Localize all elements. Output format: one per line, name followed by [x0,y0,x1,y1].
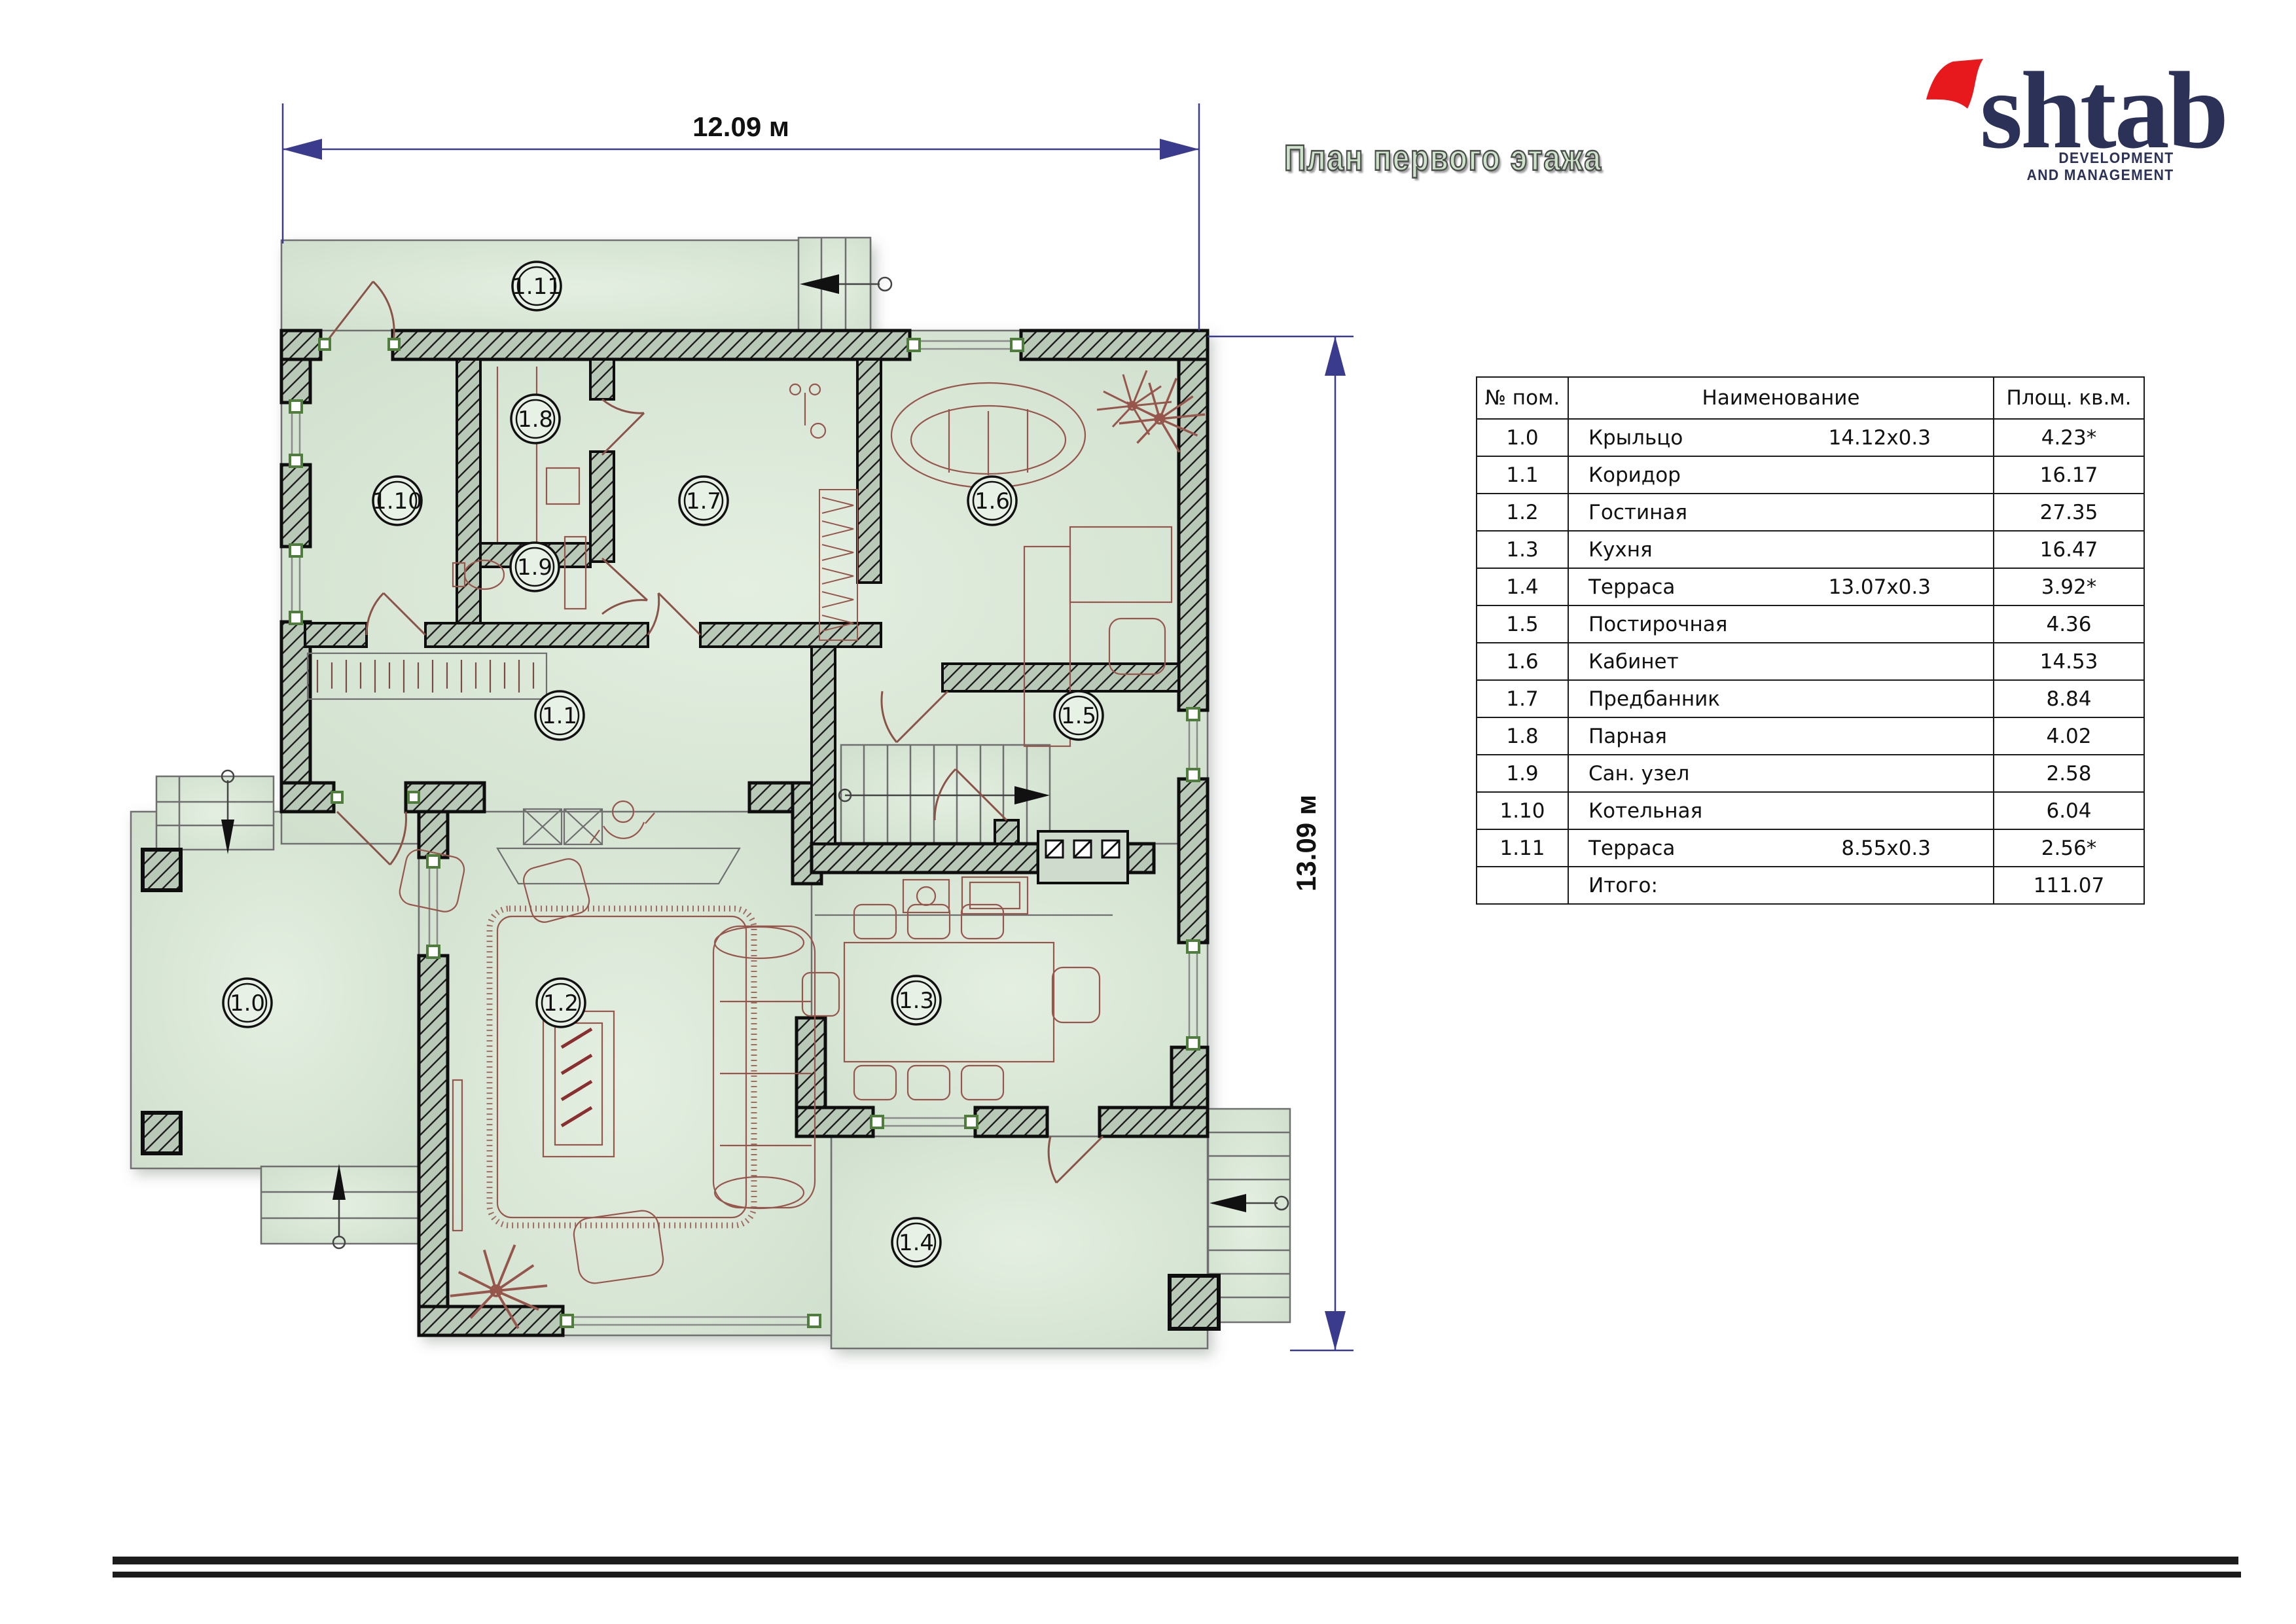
room-area-cell: 8.84 [1994,680,2144,717]
dimension-width-label: 12.09 м [692,111,789,142]
logo-tagline: DEVELOPMENT AND MANAGEMENT [2027,149,2174,184]
room-label-1-7: 1.7 [679,477,728,525]
table-row: 1.7 Предбанник 8.84 [1477,680,2144,717]
room-number-cell: 1.9 [1477,755,1568,792]
table-row: 1.2 Гостиная 27.35 [1477,494,2144,531]
room-name: Постирочная [1588,613,1727,636]
room-name-cell: Терраса 13.07x0.3 [1568,568,1994,605]
room-area-cell: 4.36 [1994,605,2144,643]
room-area-cell: 27.35 [1994,494,2144,531]
room-name-cell: Котельная [1568,792,1994,829]
room-label-1-2: 1.2 [537,979,585,1027]
room-number-cell: 1.2 [1477,494,1568,531]
room-dims: 8.55x0.3 [1841,837,1931,860]
room-name-cell: Терраса 8.55x0.3 [1568,829,1994,867]
room-name-cell: Предбанник [1568,680,1994,717]
table-row: 1.9 Сан. узел 2.58 [1477,755,2144,792]
room-dims: 14.12x0.3 [1829,426,1931,450]
room-dims: 13.07x0.3 [1829,575,1931,599]
room-area-cell: 14.53 [1994,643,2144,680]
table-row: 1.1 Коридор 16.17 [1477,456,2144,494]
room-area-table: № пом. Наименование Площ. кв.м. 1.0 Крыл… [1476,376,2145,905]
logo-flag-icon [1924,58,1984,118]
room-name: Котельная [1588,799,1702,823]
room-name: Кабинет [1588,650,1679,674]
room-number-cell: 1.3 [1477,531,1568,568]
table-row: 1.6 Кабинет 14.53 [1477,643,2144,680]
svg-text:1.6: 1.6 [975,488,1010,514]
room-name: Предбанник [1588,687,1720,711]
drawing-sheet: 1.0 1.1 1.2 1.3 1.4 1.5 1.6 1.7 1.8 1.9 … [0,0,2296,1624]
room-area-cell: 16.17 [1994,456,2144,494]
svg-text:1.4: 1.4 [899,1230,934,1256]
room-number-cell: 1.5 [1477,605,1568,643]
svg-text:1.5: 1.5 [1061,703,1096,729]
room-name: Итого: [1588,874,1658,897]
room-area-cell: 2.56* [1994,829,2144,867]
room-label-1-10: 1.10 [372,477,422,525]
room-number-cell: 1.1 [1477,456,1568,494]
room-name-cell: Итого: [1568,867,1994,904]
room-label-1-0: 1.0 [223,979,272,1027]
room-area-cell: 16.47 [1994,531,2144,568]
room-name-cell: Гостиная [1568,494,1994,531]
porch-column [143,1113,181,1153]
page-title: План первого этажа [1284,136,1602,179]
room-name-cell: Сан. узел [1568,755,1994,792]
svg-text:1.10: 1.10 [372,488,422,514]
logo-tagline-line2: AND MANAGEMENT [2027,166,2174,183]
table-row: 1.11 Терраса 8.55x0.3 2.56* [1477,829,2144,867]
room-number-cell: 1.11 [1477,829,1568,867]
room-number-cell: 1.10 [1477,792,1568,829]
svg-text:1.0: 1.0 [230,990,265,1017]
floor-main-upper [281,331,1208,844]
terrace-column [1170,1276,1219,1329]
room-area-cell: 3.92* [1994,568,2144,605]
room-area-cell: 4.23* [1994,419,2144,456]
table-header-row: № пом. Наименование Площ. кв.м. [1477,377,2144,419]
dimension-height-label: 13.09 м [1291,795,1321,892]
table-row: 1.4 Терраса 13.07x0.3 3.92* [1477,568,2144,605]
svg-text:1.11: 1.11 [512,274,562,300]
room-label-1-4: 1.4 [892,1218,941,1267]
room-name: Крыльцо [1588,426,1683,450]
room-name-cell: Кабинет [1568,643,1994,680]
room-name: Коридор [1588,463,1681,487]
room-area-cell: 111.07 [1994,867,2144,904]
room-name: Кухня [1588,538,1653,562]
room-number-cell: 1.8 [1477,717,1568,755]
footer-rule-bottom [113,1572,2241,1578]
room-area-cell: 6.04 [1994,792,2144,829]
room-label-1-9: 1.9 [511,543,559,591]
table-row: Итого: 111.07 [1477,867,2144,904]
room-number-cell: 1.7 [1477,680,1568,717]
col-header-area: Площ. кв.м. [1994,377,2144,419]
svg-text:1.2: 1.2 [543,990,579,1017]
room-label-1-6: 1.6 [968,477,1016,525]
room-name-cell: Парная [1568,717,1994,755]
svg-text:1.7: 1.7 [686,488,721,514]
room-name-cell: Коридор [1568,456,1994,494]
room-name-cell: Постирочная [1568,605,1994,643]
svg-text:1.9: 1.9 [517,554,552,581]
room-name-cell: Кухня [1568,531,1994,568]
fireplace [1038,831,1128,883]
floor-kitchen [812,844,1208,1136]
room-label-1-8: 1.8 [511,395,560,443]
footer-rule-top [113,1557,2238,1564]
room-label-1-11: 1.11 [512,262,562,310]
porch-column [143,850,181,890]
logo-tagline-line1: DEVELOPMENT [2027,149,2174,166]
room-number-cell [1477,867,1568,904]
room-number-cell: 1.0 [1477,419,1568,456]
room-number-cell: 1.4 [1477,568,1568,605]
room-name: Парная [1588,725,1667,748]
table-row: 1.3 Кухня 16.47 [1477,531,2144,568]
table-row: 1.5 Постирочная 4.36 [1477,605,2144,643]
room-label-1-3: 1.3 [892,976,941,1024]
stairs-top-terrace [798,238,891,333]
room-name: Терраса [1588,837,1675,860]
room-name: Гостиная [1588,501,1687,524]
room-area-cell: 4.02 [1994,717,2144,755]
svg-text:1.8: 1.8 [518,406,553,433]
col-header-name: Наименование [1568,377,1994,419]
room-name: Сан. узел [1588,762,1689,785]
room-name: Терраса [1588,575,1675,599]
room-label-1-1: 1.1 [535,691,584,740]
room-label-1-5: 1.5 [1054,691,1103,740]
stairs-porch-bottom [261,1164,419,1248]
room-name-cell: Крыльцо 14.12x0.3 [1568,419,1994,456]
col-header-number: № пом. [1477,377,1568,419]
svg-text:1.3: 1.3 [899,988,934,1014]
stairs-porch-top [156,770,274,854]
room-area-cell: 2.58 [1994,755,2144,792]
room-number-cell: 1.6 [1477,643,1568,680]
svg-text:1.1: 1.1 [542,703,577,729]
floor-terrace-1-4 [831,1136,1208,1348]
table-row: 1.0 Крыльцо 14.12x0.3 4.23* [1477,419,2144,456]
table-row: 1.8 Парная 4.02 [1477,717,2144,755]
table-row: 1.10 Котельная 6.04 [1477,792,2144,829]
company-logo: shtab DEVELOPMENT AND MANAGEMENT [1918,46,2193,196]
